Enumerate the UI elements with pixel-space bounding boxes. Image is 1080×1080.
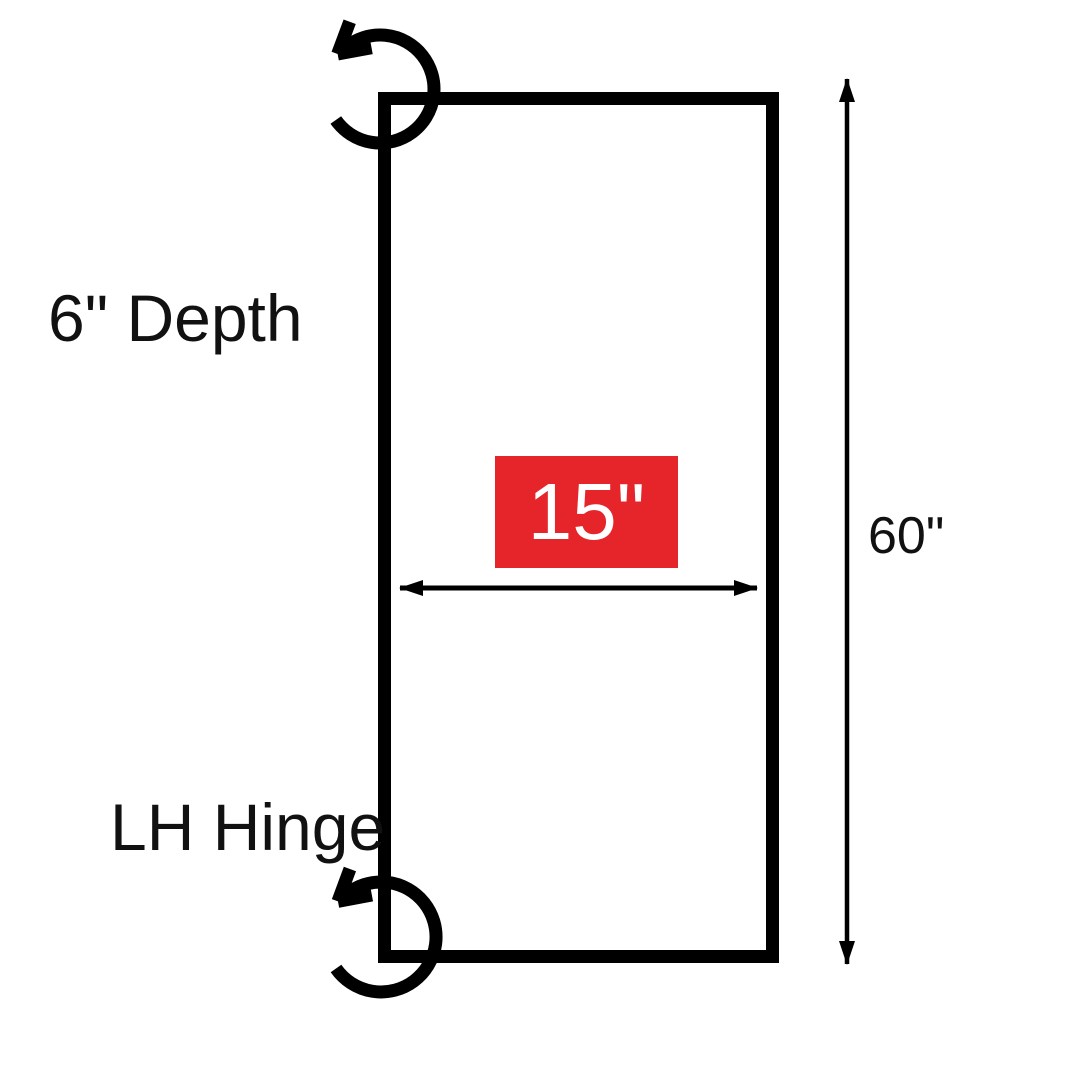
cabinet-door-diagram: 6" Depth LH Hinge 15" 60" (0, 0, 1080, 1080)
hinge-label: LH Hinge (110, 794, 385, 860)
depth-label: 6" Depth (48, 285, 303, 351)
width-dimension-value: 15" (528, 472, 645, 552)
width-dimension-badge: 15" (495, 456, 678, 568)
height-dimension-value: 60" (868, 510, 944, 562)
